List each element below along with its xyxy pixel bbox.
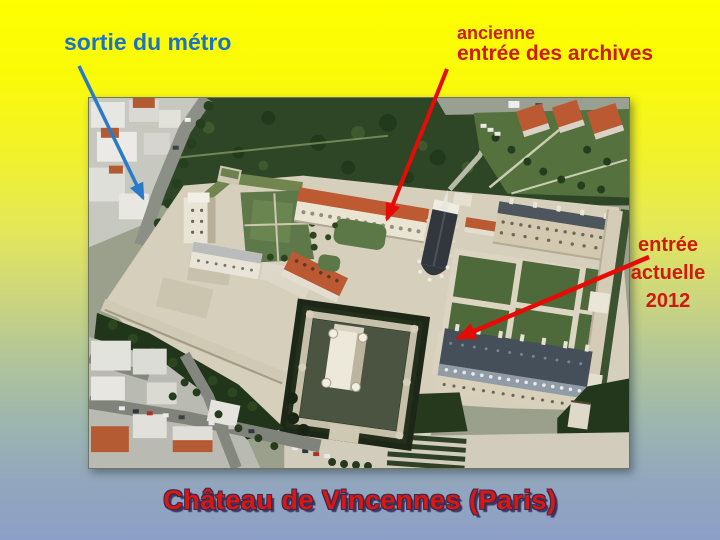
label-ancienne: ancienne [457, 24, 653, 43]
label-actuelle: actuelle [616, 259, 720, 287]
label-entree-actuelle-2012: entrée actuelle 2012 [616, 231, 720, 315]
label-entree-des-archives: entrée des archives [457, 43, 653, 66]
label-entree: entrée [616, 231, 720, 259]
label-2012: 2012 [616, 287, 720, 315]
label-ancienne-entree-archives: ancienne entrée des archives [457, 24, 653, 66]
aerial-photo-graphic [89, 98, 629, 468]
slide-title: Château de Vincennes (Paris) [0, 485, 720, 516]
aerial-photo [88, 97, 630, 469]
slide: sortie du métro ancienne entrée des arch… [0, 0, 720, 540]
label-sortie-du-metro: sortie du métro [64, 29, 231, 56]
